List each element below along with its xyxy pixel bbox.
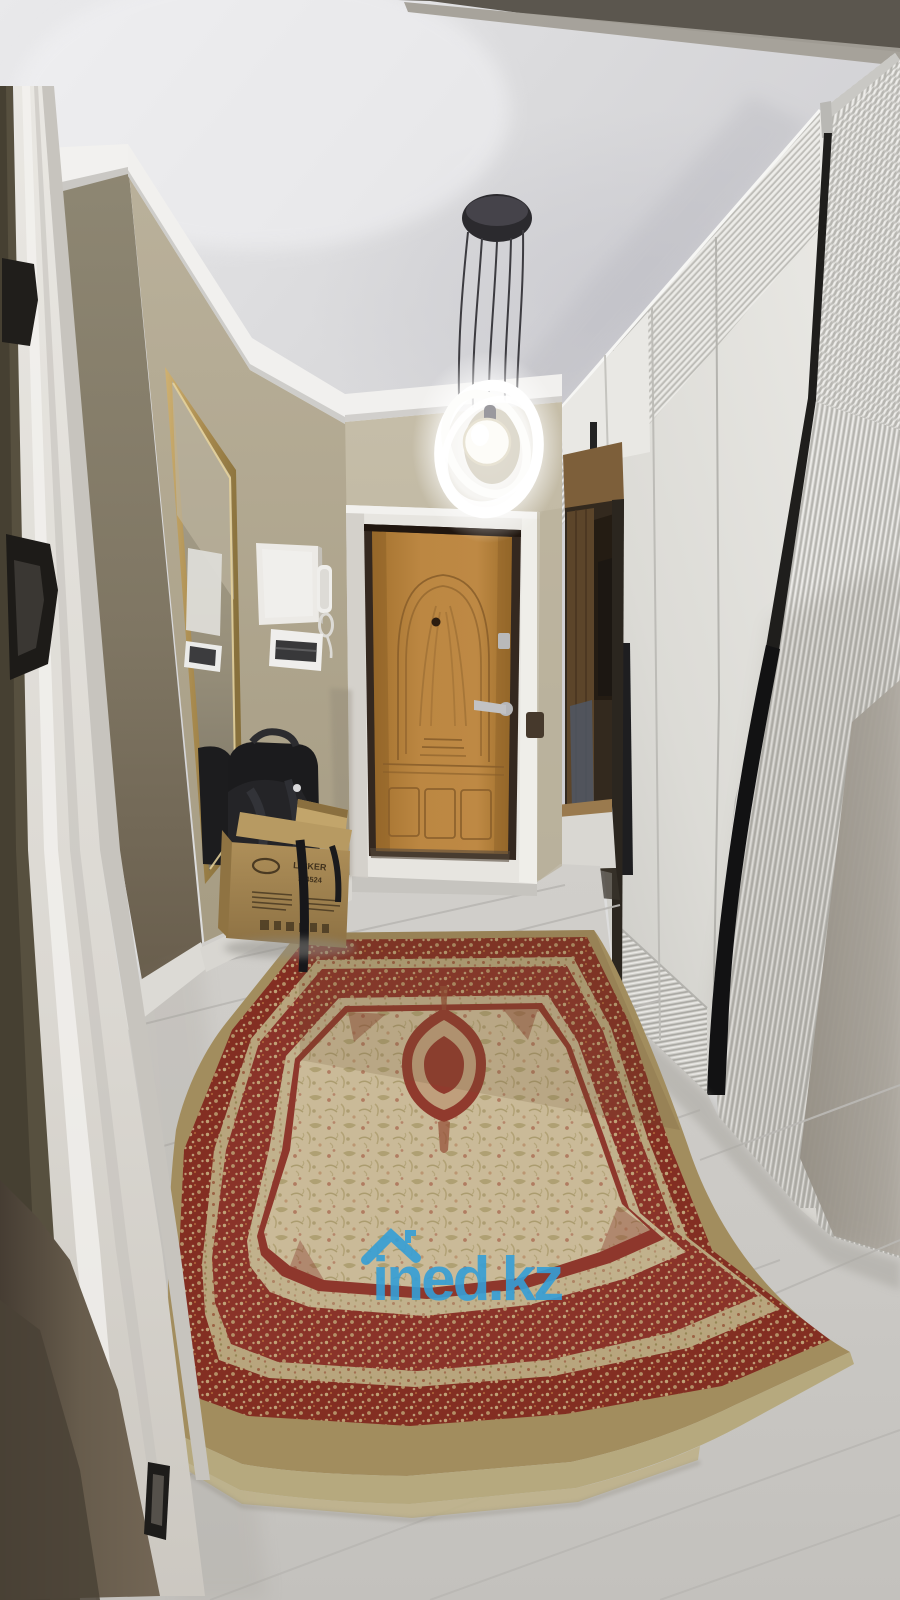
svg-text:ined.kz: ined.kz <box>372 1245 562 1314</box>
